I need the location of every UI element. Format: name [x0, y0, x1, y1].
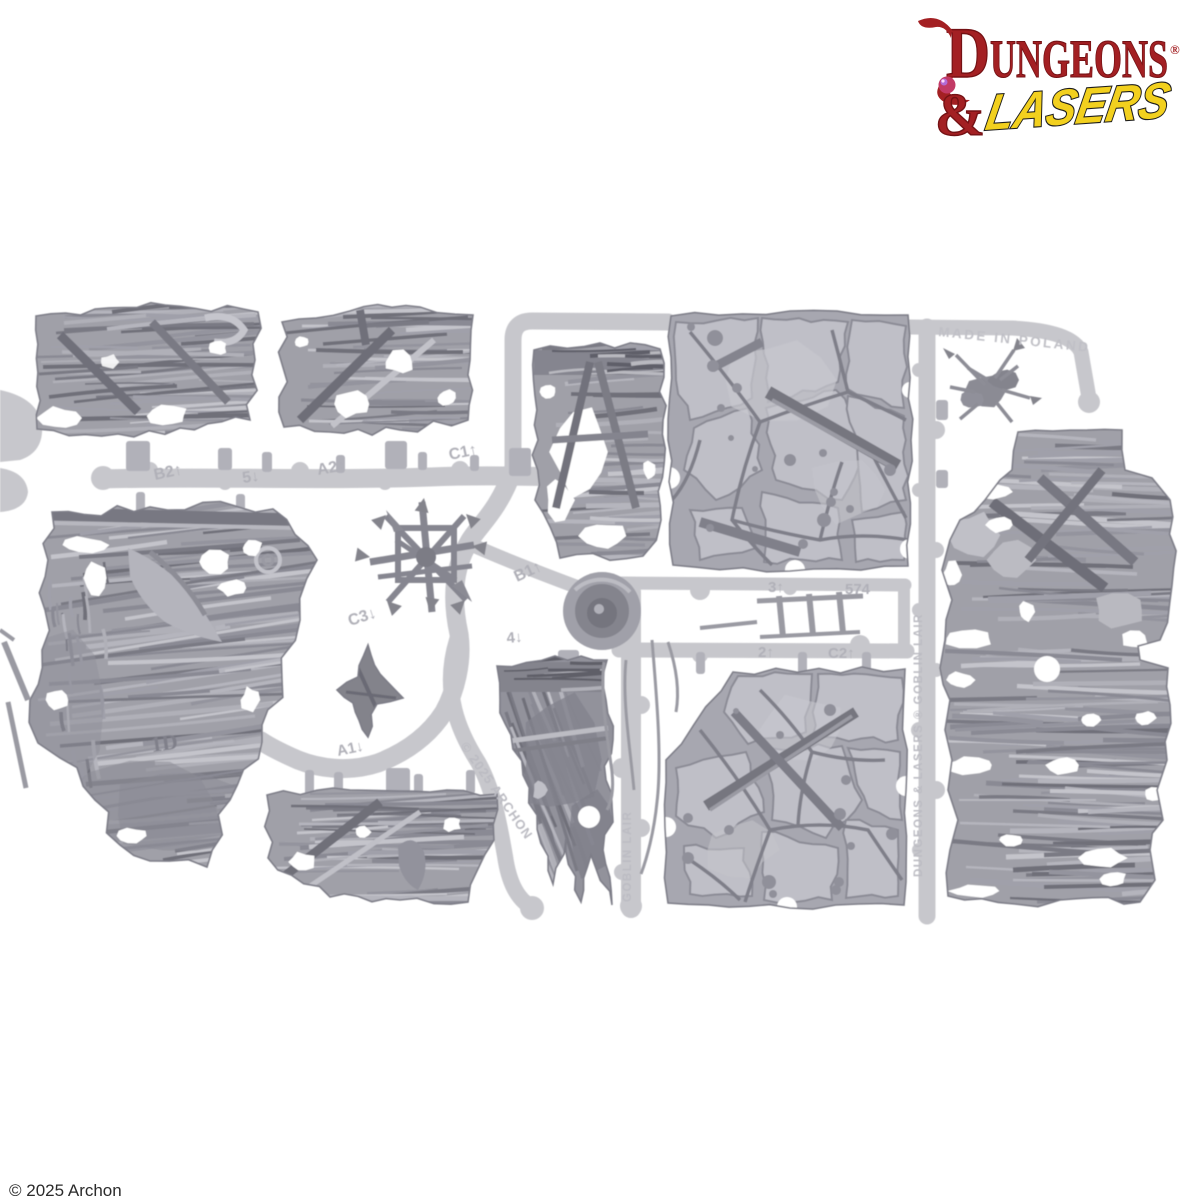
svg-text:DUNGEONS & LASERS ® GOBLIN LAI: DUNGEONS & LASERS ® GOBLIN LAIR [913, 613, 925, 877]
svg-text:1D: 1D [149, 728, 179, 756]
svg-text:574: 574 [845, 581, 871, 598]
svg-text:3↑: 3↑ [768, 579, 784, 596]
svg-text:5↓: 5↓ [241, 468, 260, 487]
svg-text:C2↑: C2↑ [828, 645, 855, 662]
svg-text:®: ® [1170, 42, 1180, 57]
svg-text:GOBLIN LAIR: GOBLIN LAIR [622, 811, 634, 902]
svg-text:4↓: 4↓ [506, 629, 523, 647]
svg-text:2↑: 2↑ [758, 644, 774, 661]
svg-text:© 2025 Archon: © 2025 Archon [9, 1181, 122, 1200]
